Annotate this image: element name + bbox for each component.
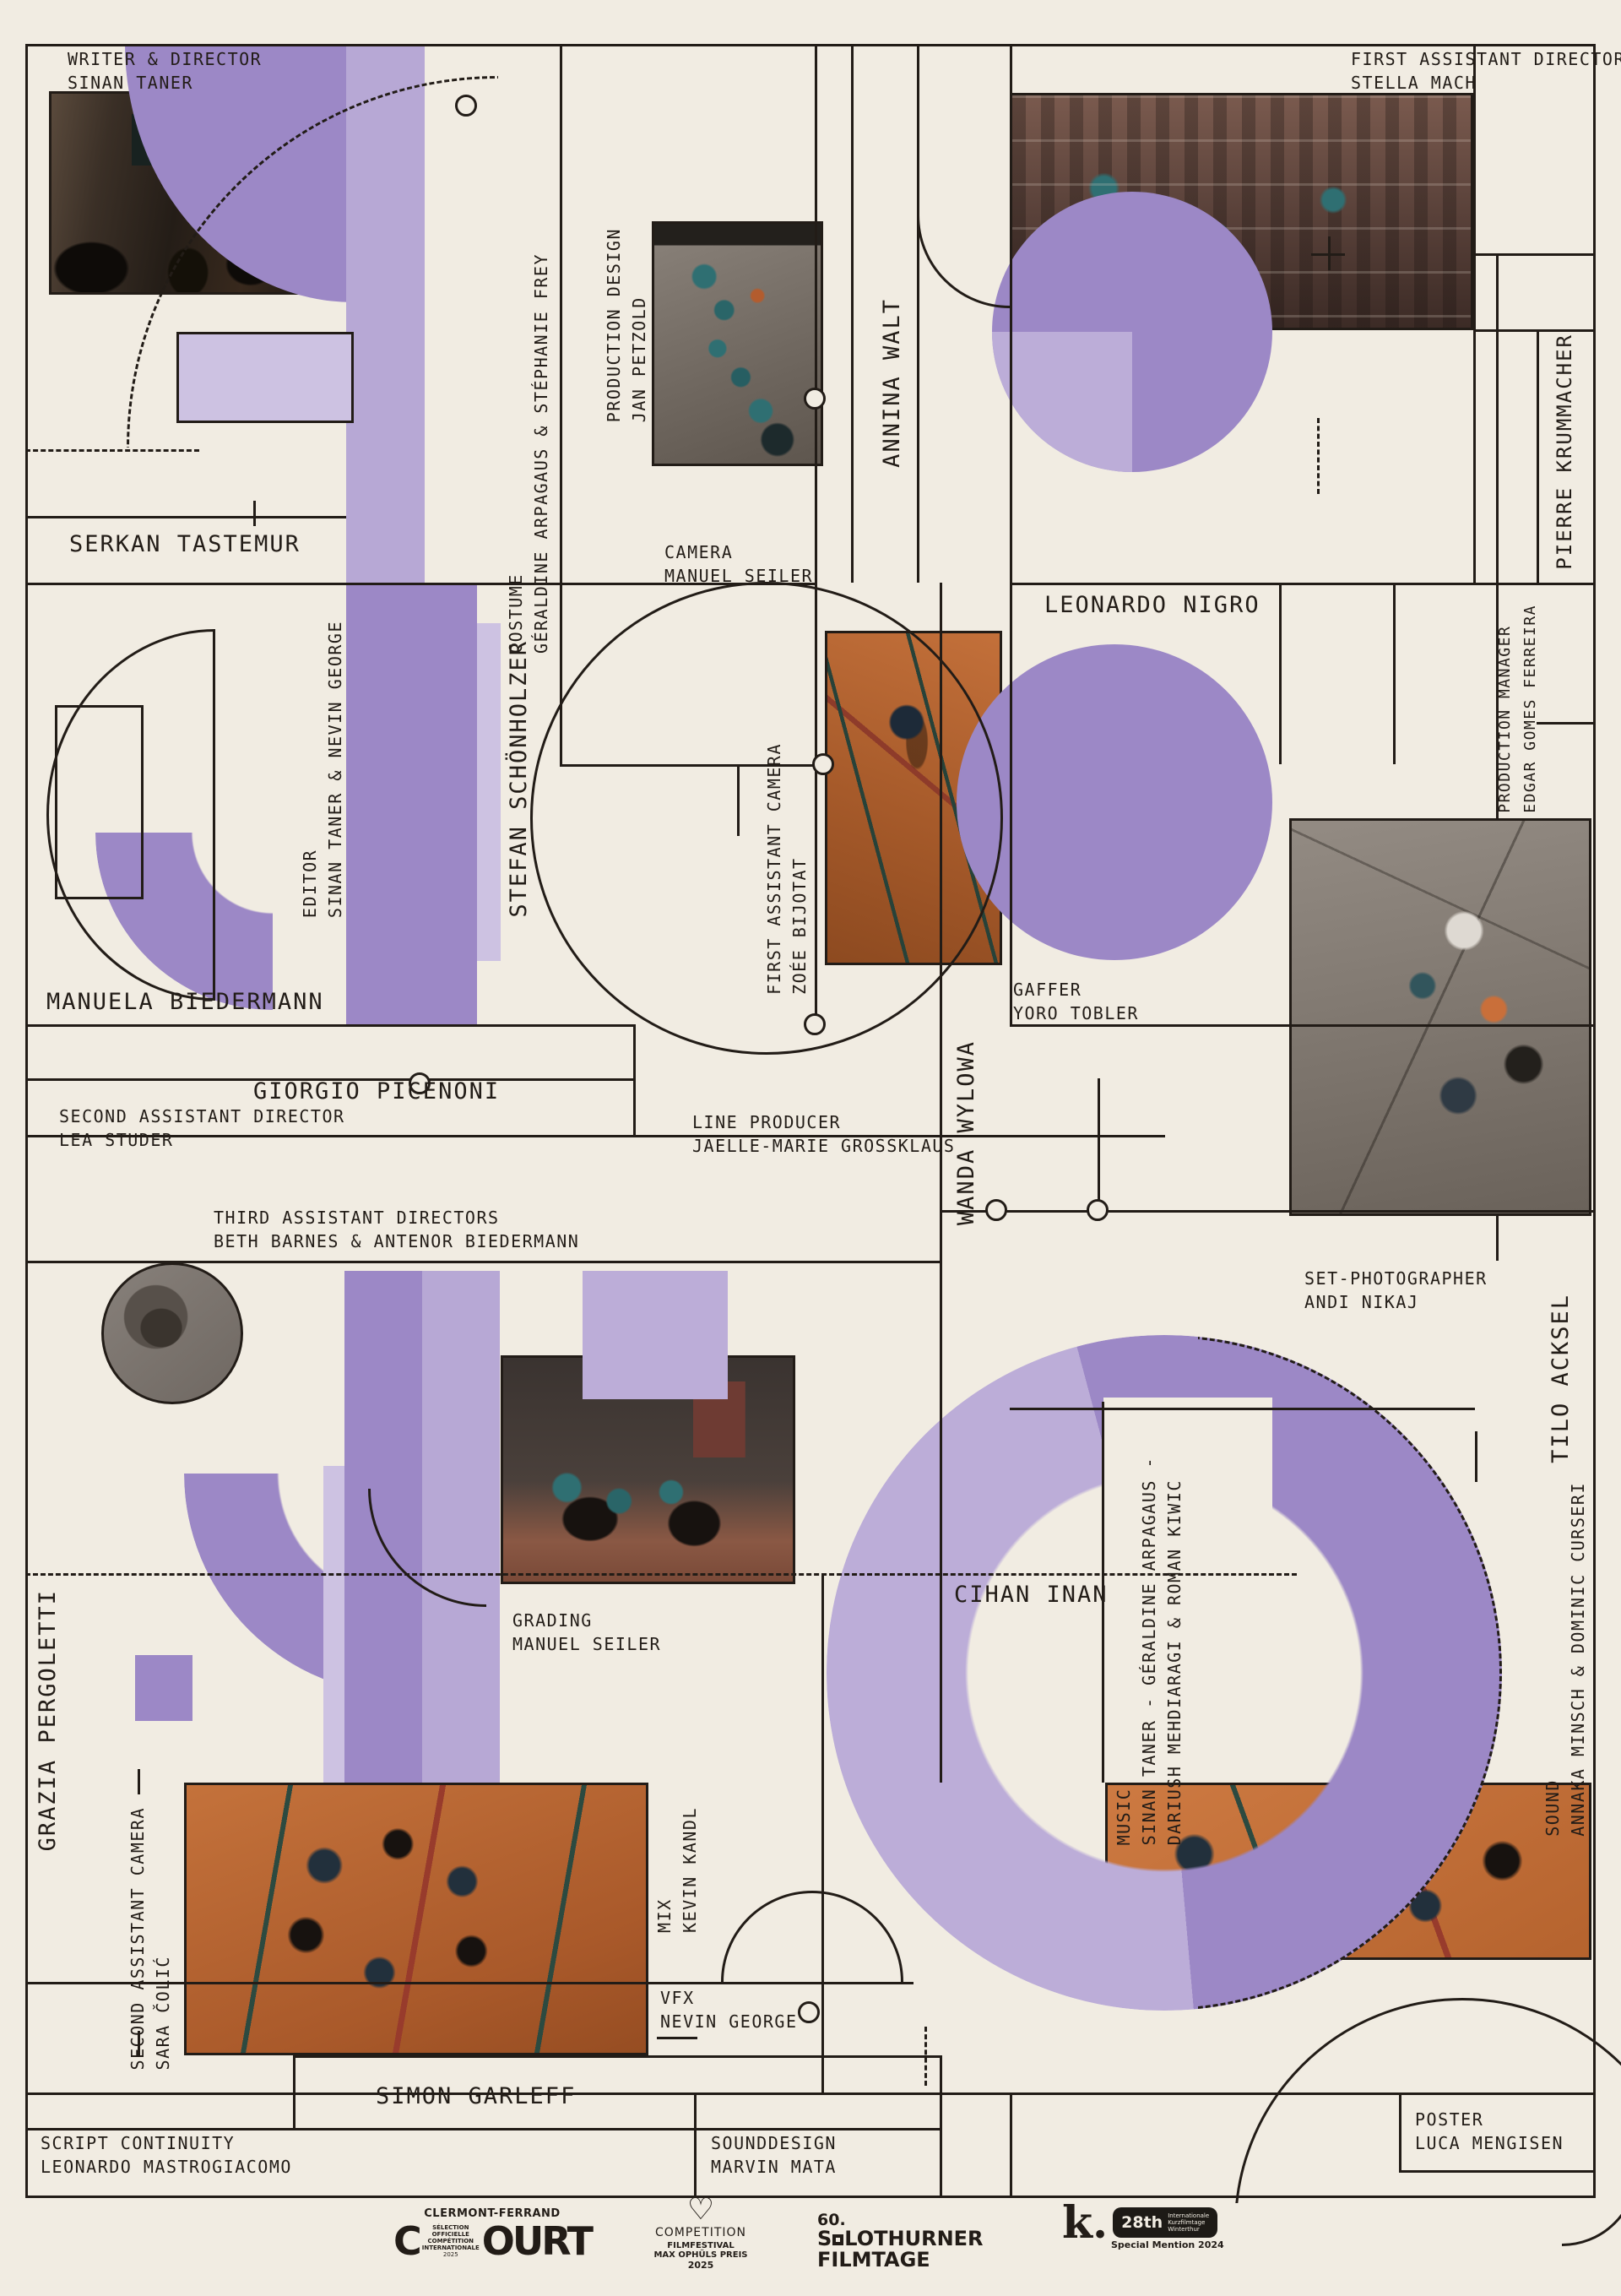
winterthur-kurzfilmtage: Kurzfilmtage	[1168, 2219, 1209, 2226]
credit-writer-director: WRITER & DIRECTOR SINAN TANER	[68, 47, 262, 95]
grid-line	[1473, 44, 1476, 583]
grid-line	[1393, 583, 1396, 764]
credit-first-assistant-camera: FIRST ASSISTANT CAMERA ZOÉE BIJOTAT	[762, 743, 812, 995]
grid-line	[1537, 722, 1596, 725]
grid-line	[940, 2055, 942, 2196]
credit-production-manager: PRODUCTION MANAGER EDGAR GOMES FERREIRA	[1493, 605, 1543, 813]
photo-schoolyard-aerial	[652, 221, 823, 466]
grid-line	[25, 44, 1596, 46]
grid-line	[55, 705, 144, 708]
credit-set-photographer: SET-PHOTOGRAPHER ANDI NIKAJ	[1304, 1267, 1488, 1314]
tick-mark	[1475, 1431, 1477, 1482]
credit-second-assistant-camera: SECOND ASSISTANT CAMERA SARA ČOLIĆ	[125, 1807, 176, 2070]
purple-disc-topright-light-quadrant	[992, 332, 1132, 472]
dashed-line	[1317, 418, 1320, 494]
grid-line	[25, 2128, 940, 2130]
credit-line-producer: LINE PRODUCER JAELLE-MARIE GROSSKLAUS	[692, 1110, 955, 1158]
clermont-wordmark-right: OURT	[482, 2222, 591, 2261]
cast-giorgio: GIORGIO PICENONI	[253, 1077, 500, 1106]
solothurner-filmtage: FILMTAGE	[817, 2250, 1003, 2271]
grid-line	[25, 1261, 940, 1263]
tick-mark	[657, 2037, 697, 2039]
purple-rect-light-mid	[583, 1271, 728, 1399]
cast-wanda: WANDA WYLOWA	[952, 1040, 981, 1225]
grid-line	[940, 1210, 1596, 1213]
plus-mark	[1328, 236, 1331, 270]
ophuls-max-ophuls: MAX OPHÜLS PREIS	[650, 2250, 751, 2260]
grid-line	[293, 2055, 940, 2058]
cast-manuela: MANUELA BIEDERMANN	[46, 988, 324, 1017]
circle-node	[812, 753, 834, 775]
cast-cihan: CIHAN INAN	[954, 1581, 1109, 1609]
winterthur-winterthur: Winterthur	[1168, 2226, 1209, 2233]
logo-clermont-ferrand: CLERMONT-FERRAND C SÉLECTION OFFICIELLE …	[404, 2207, 581, 2261]
ophuls-filmfestival: FILMFESTIVAL	[650, 2241, 751, 2250]
grid-line	[1010, 2092, 1012, 2196]
grid-line	[25, 516, 346, 518]
grid-line	[1496, 1216, 1499, 1261]
cast-leonardo: LEONARDO NIGRO	[1044, 591, 1260, 620]
credit-costume: COSTUME GÉRALDINE ARPAGAUS & STÉPHANIE F…	[503, 253, 554, 654]
cast-tilo: TILO ACKSEL	[1547, 1294, 1575, 1463]
clermont-competition: COMPÉTITION	[422, 2238, 480, 2244]
grid-line	[1010, 583, 1596, 585]
credit-first-assistant-director: FIRST ASSISTANT DIRECTOR STELLA MACH	[1351, 47, 1621, 95]
heart-icon: ♡	[650, 2194, 751, 2226]
circle-node	[804, 388, 826, 410]
circle-node	[804, 1013, 826, 1035]
grid-line	[1010, 1408, 1475, 1410]
credit-second-assistant-director: SECOND ASSISTANT DIRECTOR LEA STUDER	[59, 1105, 345, 1152]
grid-line	[633, 1024, 636, 1135]
purple-strip-light-left	[323, 1466, 344, 1783]
logo-solothurner-filmtage: 60. SLOTHURNER FILMTAGE	[817, 2212, 1003, 2271]
clermont-internationale: INTERNATIONALE	[422, 2244, 480, 2251]
solothurner-s: S	[817, 2227, 832, 2250]
clermont-selection: SÉLECTION OFFICIELLE	[422, 2224, 480, 2238]
logo-max-ophuls-preis: ♡ COMPETITION FILMFESTIVAL MAX OPHÜLS PR…	[650, 2194, 751, 2271]
ophuls-year: 2025	[650, 2260, 751, 2271]
credit-sounddesign: SOUNDDESIGN MARVIN MATA	[711, 2131, 837, 2179]
grid-line	[1399, 2092, 1401, 2170]
logo-kurzfilmtage-winterthur: k. 28th Internationale Kurzfilmtage Wint…	[1062, 2202, 1231, 2250]
photo-street-group-aerial	[1289, 818, 1591, 1216]
clermont-year: 2025	[422, 2251, 480, 2258]
credit-music: MUSIC SINAN TANER - GÉRALDINE ARPAGAUS -…	[1111, 1457, 1187, 1845]
grid-line	[737, 764, 740, 836]
purple-disc-middle	[957, 644, 1272, 960]
grid-line	[1279, 583, 1282, 764]
grid-line	[25, 1024, 633, 1027]
grid-line	[141, 705, 144, 899]
credit-mix: MIX KEVIN KANDL	[652, 1807, 702, 1933]
grid-line	[851, 44, 854, 583]
cast-grazia: GRAZIA PERGOLETTI	[34, 1589, 62, 1851]
winterthur-badge: 28th Internationale Kurzfilmtage Wintert…	[1113, 2207, 1217, 2238]
grid-line	[1399, 2170, 1596, 2173]
photo-pigeon-circle	[101, 1262, 243, 1404]
grid-line	[815, 44, 817, 1024]
grid-line	[1010, 44, 1012, 1024]
cast-annina: ANNINA WALT	[878, 298, 907, 468]
ophuls-competition: COMPETITION	[650, 2226, 751, 2239]
credit-third-assistant-directors: THIRD ASSISTANT DIRECTORS BETH BARNES & …	[214, 1206, 579, 1253]
grid-line	[560, 44, 562, 764]
grid-line	[821, 1573, 824, 2092]
credit-sound: SOUND ANNAKA MINSCH & DOMINIC CURSERI	[1540, 1482, 1591, 1837]
circle-node	[1087, 1199, 1109, 1221]
purple-bar-medium-mid	[346, 583, 477, 1024]
cast-serkan: SERKAN TASTEMUR	[69, 530, 301, 559]
grid-line	[917, 44, 919, 583]
circle-node	[985, 1199, 1007, 1221]
half-disc-outline-left	[46, 629, 215, 1001]
grid-line	[25, 2092, 1596, 2095]
grid-line	[1537, 329, 1539, 583]
dashed-line	[924, 2027, 927, 2086]
purple-square-small	[135, 1655, 192, 1721]
clermont-wordmark-left: C	[393, 2222, 420, 2261]
grid-line	[293, 2055, 295, 2128]
grid-line	[25, 2196, 1596, 2198]
tick-mark	[253, 501, 256, 526]
circle-node	[455, 95, 477, 117]
cast-stefan: STEFAN SCHÖNHOLZER	[505, 640, 534, 918]
credit-script-continuity: SCRIPT CONTINUITY LEONARDO MASTROGIACOMO	[41, 2131, 292, 2179]
photo-gym-circle-kids	[184, 1783, 648, 2055]
grid-line	[1473, 329, 1596, 332]
grid-line	[940, 583, 942, 1783]
film-credits-poster: WRITER & DIRECTOR SINAN TANER FIRST ASSI…	[0, 0, 1621, 2296]
grid-line	[25, 44, 28, 2196]
winterthur-mention: Special Mention 2024	[1111, 2239, 1231, 2250]
grid-line	[1593, 44, 1596, 2196]
dashed-line	[25, 1573, 1297, 1576]
cast-pierre: PIERRE KRUMMACHER	[1550, 334, 1579, 570]
credit-vfx: VFX NEVIN GEORGE	[660, 1986, 798, 2033]
credit-production-design: PRODUCTION DESIGN JAN PETZOLD	[601, 228, 652, 422]
circle-node	[798, 2001, 820, 2023]
grid-line	[55, 705, 57, 899]
grid-line	[55, 897, 144, 899]
tick-mark	[138, 1769, 140, 1794]
credit-grading: GRADING MANUEL SEILER	[512, 1609, 661, 1656]
credit-poster: POSTER LUCA MENGISEN	[1415, 2108, 1564, 2155]
credit-camera: CAMERA MANUEL SEILER	[664, 540, 813, 588]
dashed-line	[25, 449, 199, 452]
grid-line	[1098, 1078, 1100, 1210]
cast-simon: SIMON GARLEFF	[376, 2082, 576, 2111]
winterthur-k-mark: k.	[1062, 2202, 1108, 2244]
credit-editor: EDITOR SINAN TANER & NEVIN GEORGE	[297, 621, 348, 918]
winterthur-28th: 28th	[1121, 2213, 1163, 2232]
solothurner-rest: LOTHURNER	[844, 2227, 983, 2250]
square-glyph	[832, 2234, 843, 2245]
purple-strip-lighter	[477, 623, 501, 961]
grid-line	[694, 2092, 697, 2196]
credit-gaffer: GAFFER YORO TOBLER	[1013, 978, 1139, 1025]
grid-line	[1473, 253, 1596, 256]
winterthur-internationale: Internationale	[1168, 2212, 1209, 2219]
